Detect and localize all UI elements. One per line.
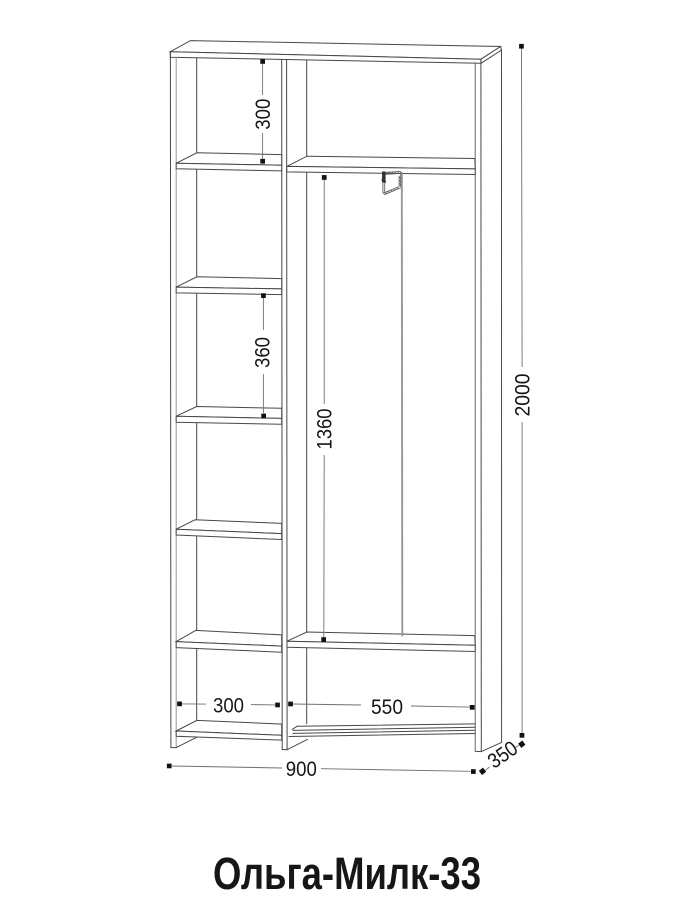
svg-text:550: 550 [371, 696, 403, 719]
svg-text:360: 360 [252, 337, 275, 368]
svg-text:2000: 2000 [511, 374, 534, 417]
svg-text:900: 900 [286, 758, 317, 781]
svg-text:300: 300 [252, 99, 275, 130]
svg-text:Ольга-Милк-33: Ольга-Милк-33 [213, 848, 481, 899]
svg-text:350: 350 [484, 737, 523, 774]
svg-text:1360: 1360 [314, 409, 337, 450]
svg-text:300: 300 [213, 694, 244, 717]
